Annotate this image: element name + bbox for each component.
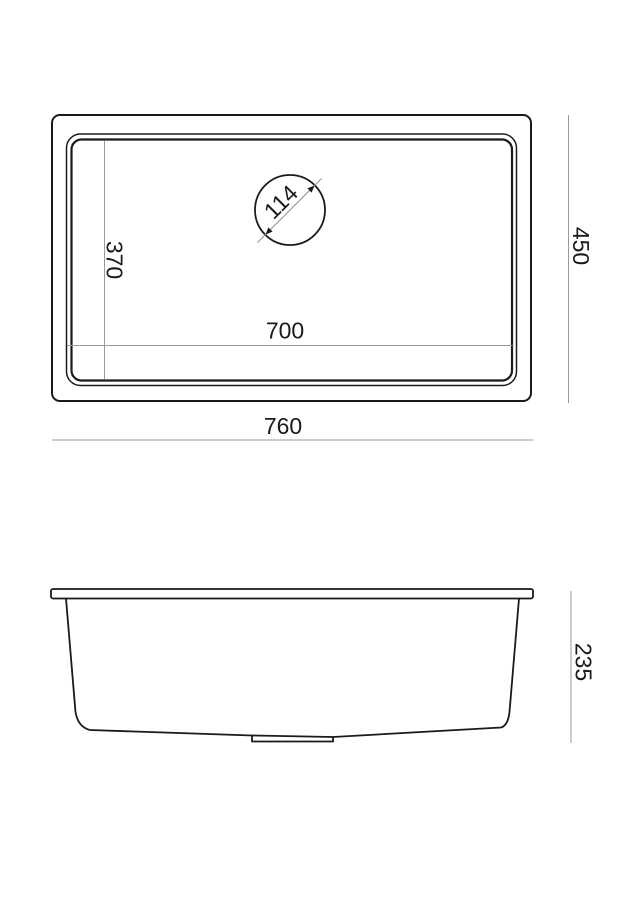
technical-drawing-canvas: 114 370 700 450 760 235 xyxy=(0,0,636,900)
side-view-rim xyxy=(51,589,533,599)
side-view-body-profile xyxy=(66,599,519,738)
overall-depth-label: 450 xyxy=(568,227,594,265)
side-view-height-label: 235 xyxy=(571,643,597,681)
side-view xyxy=(51,589,533,742)
top-view-bowl-rim-outer xyxy=(67,134,517,386)
bowl-depth-label: 370 xyxy=(102,241,128,279)
top-view-dimensions xyxy=(52,115,569,440)
sink-technical-drawing: 114 370 700 450 760 235 xyxy=(0,0,636,900)
overall-width-label: 760 xyxy=(264,413,302,439)
bowl-width-label: 700 xyxy=(266,318,304,344)
